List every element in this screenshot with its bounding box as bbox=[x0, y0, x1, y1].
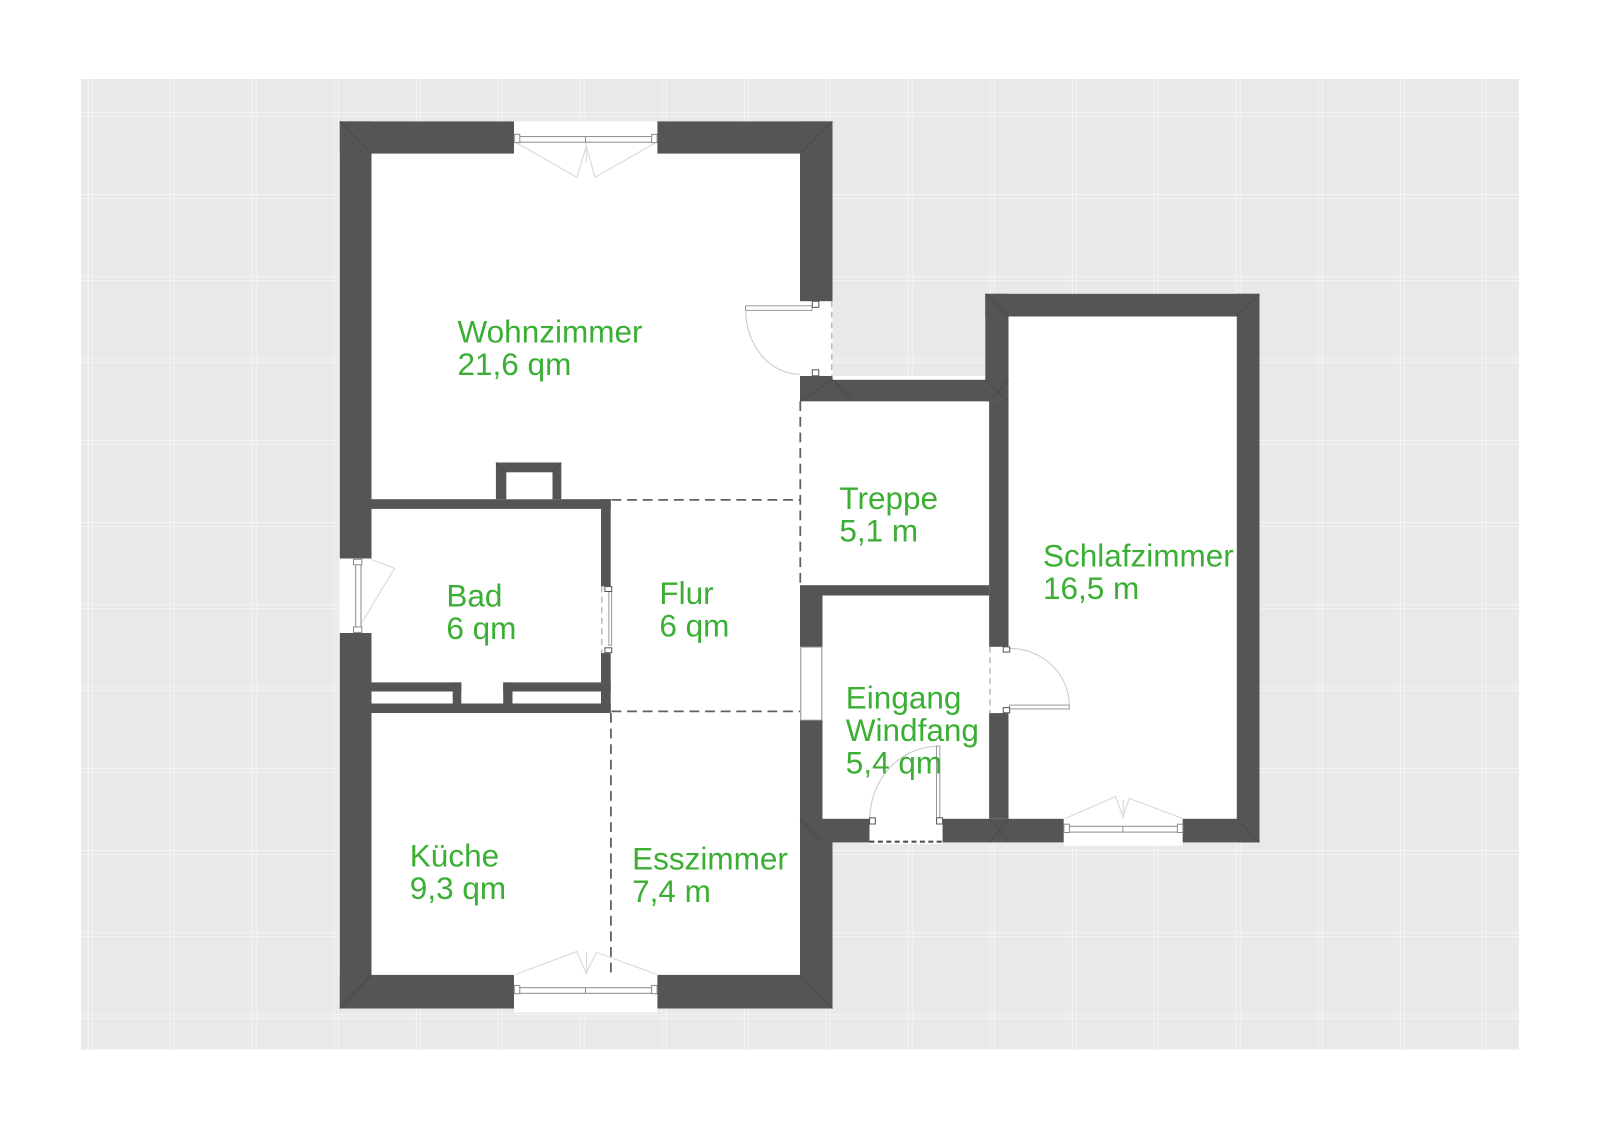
svg-text:Schlafzimmer: Schlafzimmer bbox=[1043, 538, 1234, 574]
svg-text:9,3 qm: 9,3 qm bbox=[410, 870, 506, 906]
svg-text:Eingang: Eingang bbox=[846, 679, 962, 715]
svg-text:6 qm: 6 qm bbox=[659, 608, 729, 644]
svg-text:Flur: Flur bbox=[659, 575, 713, 611]
svg-text:7,4 m: 7,4 m bbox=[632, 873, 711, 909]
svg-text:Küche: Küche bbox=[410, 838, 499, 874]
svg-text:Treppe: Treppe bbox=[839, 480, 938, 516]
svg-text:5,4 qm: 5,4 qm bbox=[846, 744, 942, 780]
svg-text:Windfang: Windfang bbox=[846, 712, 979, 748]
svg-text:Bad: Bad bbox=[446, 577, 502, 613]
svg-text:Esszimmer: Esszimmer bbox=[632, 840, 788, 876]
svg-text:21,6 qm: 21,6 qm bbox=[458, 346, 572, 382]
svg-text:5,1 m: 5,1 m bbox=[839, 513, 918, 549]
svg-text:6 qm: 6 qm bbox=[446, 610, 516, 646]
svg-text:16,5 m: 16,5 m bbox=[1043, 570, 1139, 606]
svg-text:Wohnzimmer: Wohnzimmer bbox=[458, 313, 643, 349]
